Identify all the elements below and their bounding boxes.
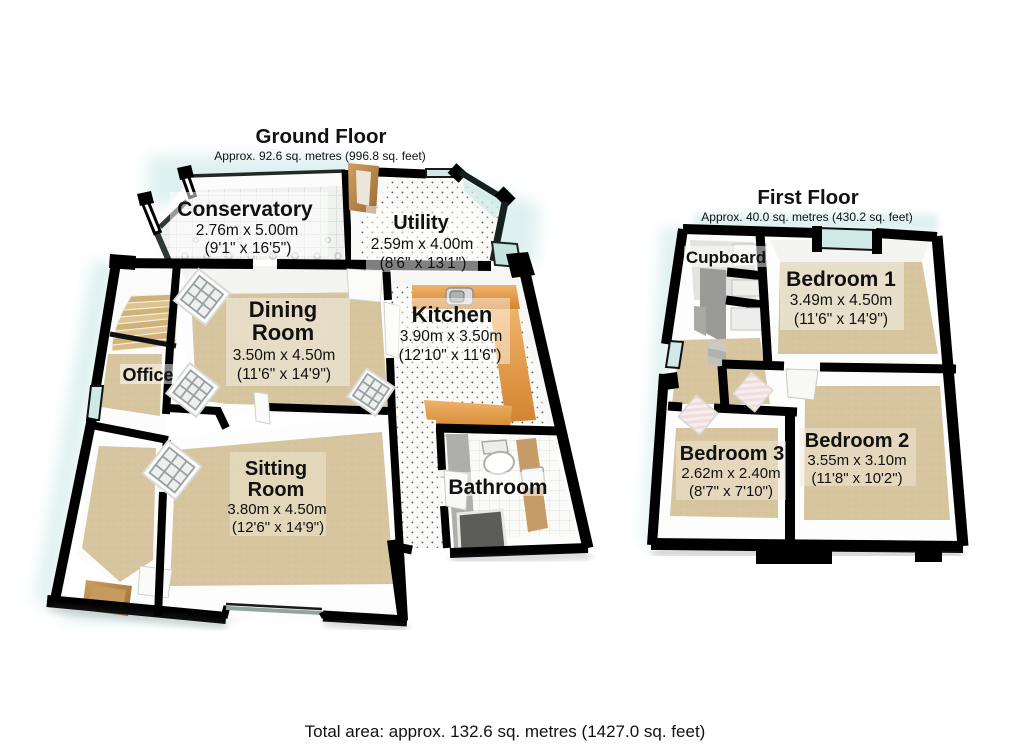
svg-text:(11'6" x 14'9"): (11'6" x 14'9") — [794, 311, 888, 328]
svg-text:Office: Office — [122, 365, 173, 385]
svg-text:2.76m x 5.00m: 2.76m x 5.00m — [196, 222, 299, 239]
svg-text:Room: Room — [252, 320, 314, 345]
svg-text:Approx. 92.6 sq. metres (996.8: Approx. 92.6 sq. metres (996.8 sq. feet) — [214, 149, 425, 163]
svg-text:Bedroom 1: Bedroom 1 — [786, 268, 896, 291]
svg-text:3.90m x 3.50m: 3.90m x 3.50m — [400, 328, 503, 345]
svg-text:Approx. 40.0 sq. metres (430.2: Approx. 40.0 sq. metres (430.2 sq. feet) — [701, 210, 912, 224]
svg-text:Room: Room — [248, 479, 305, 501]
svg-text:2.62m x 2.40m: 2.62m x 2.40m — [681, 465, 780, 482]
svg-text:Ground Floor: Ground Floor — [256, 125, 387, 148]
svg-text:(8'7" x 7'10"): (8'7" x 7'10") — [689, 483, 773, 500]
svg-text:Kitchen: Kitchen — [412, 302, 493, 327]
svg-text:Cupboard: Cupboard — [686, 248, 766, 267]
svg-text:3.49m x 4.50m: 3.49m x 4.50m — [790, 292, 893, 309]
svg-text:(12'6" x 14'9"): (12'6" x 14'9") — [232, 519, 324, 536]
svg-text:First Floor: First Floor — [757, 186, 858, 209]
svg-text:Conservatory: Conservatory — [177, 198, 313, 221]
svg-text:(12'10" x 11'6"): (12'10" x 11'6") — [399, 347, 502, 364]
svg-text:Total area: approx. 132.6 sq.: Total area: approx. 132.6 sq. metres (14… — [305, 722, 706, 741]
svg-text:Sitting: Sitting — [245, 458, 307, 480]
svg-text:2.59m x 4.00m: 2.59m x 4.00m — [371, 236, 474, 253]
svg-text:Dining: Dining — [249, 297, 317, 322]
svg-text:Utility: Utility — [393, 212, 449, 234]
svg-text:(11'8" x 10'2"): (11'8" x 10'2") — [811, 470, 902, 487]
svg-text:(9'1" x 16'5"): (9'1" x 16'5") — [205, 240, 292, 257]
svg-text:(11'6" x 14'9"): (11'6" x 14'9") — [237, 366, 331, 383]
svg-text:(8'6" x 13'1"): (8'6" x 13'1") — [380, 255, 467, 272]
svg-text:3.50m x 4.50m: 3.50m x 4.50m — [233, 347, 336, 364]
svg-text:3.55m x 3.10m: 3.55m x 3.10m — [807, 452, 906, 469]
svg-text:Bedroom 3: Bedroom 3 — [680, 443, 784, 465]
svg-text:Bathroom: Bathroom — [448, 476, 547, 499]
svg-text:Bedroom 2: Bedroom 2 — [805, 430, 909, 452]
svg-text:3.80m x 4.50m: 3.80m x 4.50m — [227, 501, 326, 518]
